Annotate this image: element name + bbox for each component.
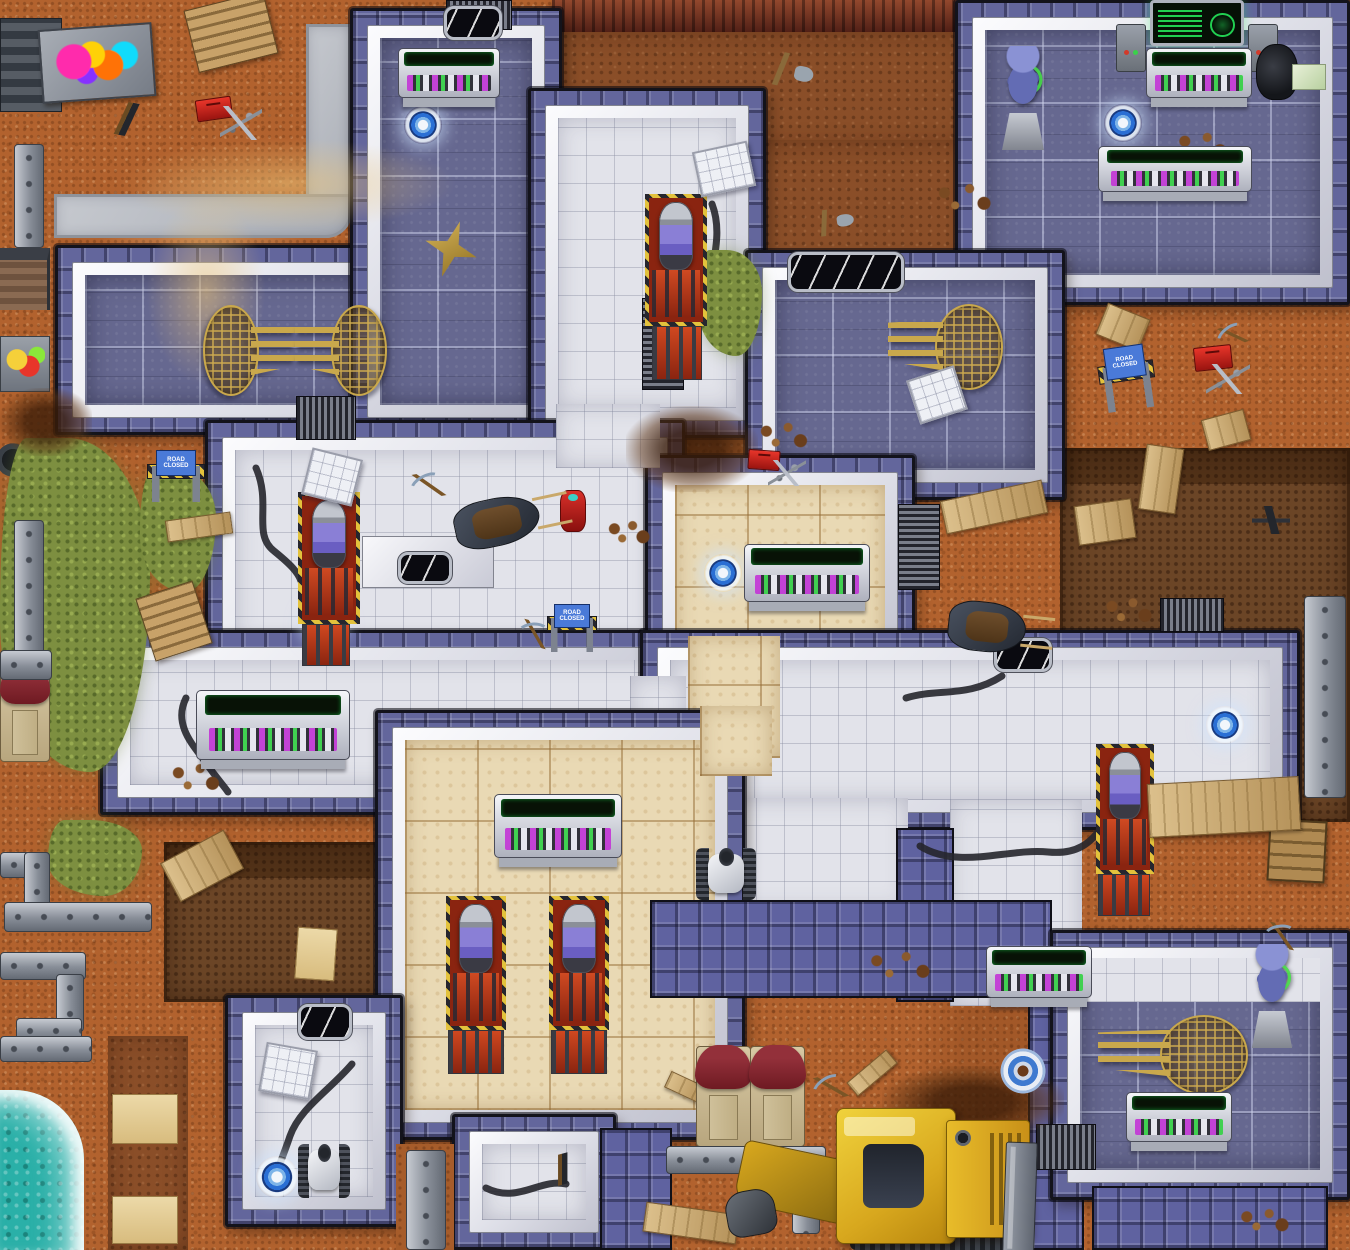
teleporter-pad[interactable] [404, 106, 442, 144]
wall-window [788, 252, 904, 292]
control-console[interactable] [494, 794, 622, 858]
computer-wall-screen[interactable] [1150, 0, 1244, 46]
trench-board [112, 1196, 178, 1244]
control-console[interactable] [1126, 1092, 1232, 1142]
porta-potty [750, 1046, 805, 1147]
steel-girder [1304, 596, 1346, 798]
grass-patch [48, 820, 142, 896]
pistol [1252, 506, 1290, 534]
wall-bracket [1116, 24, 1146, 72]
wall-window [298, 1004, 352, 1040]
bulldozer-blade [1002, 1141, 1038, 1250]
road-closed-sign: ROAD CLOSED [1103, 344, 1147, 381]
floor-grate [652, 326, 702, 380]
target-marker [998, 1046, 1048, 1096]
eagle-globe-emblem [1098, 1008, 1248, 1098]
floor-grate [1098, 874, 1150, 916]
game-map: ROAD CLOSEDROAD CLOSEDROAD CLOSED [0, 0, 1350, 1250]
road-closed-barricade[interactable]: ROAD CLOSED [546, 604, 598, 652]
wall-window [444, 6, 502, 40]
steel-barrier [4, 902, 152, 932]
wood-plank [1073, 498, 1136, 546]
teleporter-pad[interactable] [1206, 706, 1244, 744]
loose-floor-panel [258, 1042, 318, 1100]
control-console[interactable] [1098, 146, 1252, 192]
control-console[interactable] [1146, 48, 1252, 98]
props-layer: ROAD CLOSEDROAD CLOSEDROAD CLOSED [0, 0, 1350, 1250]
hydraulic-press[interactable] [446, 896, 506, 1030]
steel-barrier [0, 1036, 92, 1062]
rock-scatter [604, 516, 656, 548]
floor-grate [551, 1030, 607, 1074]
porta-potty [696, 1046, 751, 1147]
control-console[interactable] [986, 946, 1092, 998]
steel-girder [14, 144, 44, 248]
control-console[interactable] [196, 690, 350, 760]
rock-scatter [754, 416, 816, 454]
teleporter-pad[interactable] [1104, 104, 1142, 142]
rock-scatter [860, 944, 944, 986]
tool-scatter [768, 460, 806, 486]
floor-grate [448, 1030, 504, 1074]
steel-girder [406, 1150, 446, 1250]
eagle-globe-emblem [203, 297, 295, 400]
road-closed-sign: ROAD CLOSED [156, 450, 197, 476]
hydraulic-press[interactable] [1096, 744, 1154, 874]
alien-statue[interactable] [998, 46, 1048, 150]
trench-board [294, 927, 338, 982]
dirt-mound [0, 388, 92, 456]
rock-scatter [1100, 592, 1160, 628]
road-closed-sign: ROAD CLOSED [554, 604, 589, 628]
map-papers [1292, 64, 1326, 90]
hydraulic-press[interactable] [549, 896, 609, 1030]
pickaxe [805, 1068, 856, 1105]
wheelbarrow [450, 490, 544, 555]
graffiti-wall [38, 22, 157, 104]
hydraulic-press[interactable] [298, 492, 360, 624]
rifle [537, 1149, 589, 1190]
pickaxe [404, 468, 454, 502]
rock-scatter [930, 176, 1002, 218]
road-closed-barricade[interactable]: ROAD CLOSED [146, 450, 206, 502]
rock-scatter [166, 756, 228, 798]
shovel [794, 206, 855, 240]
wood-log [1201, 409, 1252, 451]
tracked-robot[interactable] [298, 1144, 350, 1198]
wall-window [398, 552, 452, 584]
steel-girder [14, 520, 44, 664]
hydraulic-press[interactable] [645, 194, 707, 326]
floor-grate [302, 624, 350, 666]
wood-plank [1138, 444, 1185, 515]
control-console[interactable] [398, 48, 500, 98]
loose-floor-panel [692, 141, 756, 198]
shovel [747, 46, 817, 93]
road-closed-barricade[interactable]: ROAD CLOSED [1094, 342, 1160, 413]
control-console[interactable] [744, 544, 870, 602]
alien-statue[interactable] [1248, 944, 1296, 1048]
bulldozer-cab[interactable] [836, 1108, 956, 1244]
rifle [97, 98, 156, 141]
rock-scatter [1234, 1204, 1298, 1236]
steel-girder [0, 650, 52, 680]
teleporter-pad[interactable] [256, 1156, 298, 1198]
tool-scatter [220, 106, 262, 140]
wood-plank [160, 830, 244, 903]
tracked-robot[interactable] [696, 848, 756, 900]
dirt-mound [626, 406, 758, 492]
trench-board [112, 1094, 178, 1144]
wood-pallet [183, 0, 278, 73]
plank-bridge [1147, 776, 1302, 838]
wood-plank [940, 480, 1049, 535]
pickaxe [1210, 317, 1257, 352]
teleporter-pad[interactable] [704, 554, 742, 592]
eagle-globe-emblem [295, 297, 387, 400]
grass-patch [698, 250, 762, 356]
tool-scatter [1206, 364, 1250, 394]
